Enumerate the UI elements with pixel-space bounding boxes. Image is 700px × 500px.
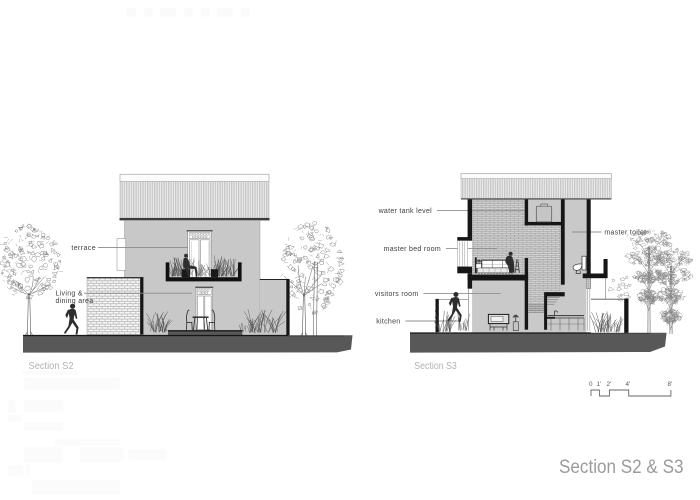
svg-text:Section S3: Section S3 (414, 361, 457, 372)
svg-text:master toilet: master toilet (604, 229, 646, 236)
svg-text:Section S2 & S3: Section S2 & S3 (559, 456, 684, 478)
svg-text:kitchen: kitchen (376, 319, 400, 326)
svg-text:Living &: Living & (56, 290, 83, 297)
svg-text:terrace: terrace (71, 245, 96, 252)
svg-text:1': 1' (597, 381, 602, 388)
svg-text:dining area: dining area (56, 298, 94, 305)
svg-text:8': 8' (668, 381, 673, 388)
svg-text:0: 0 (589, 381, 593, 388)
svg-text:visitors room: visitors room (375, 291, 419, 298)
svg-text:2': 2' (607, 381, 612, 388)
svg-text:water tank level: water tank level (378, 208, 433, 215)
svg-text:master bed room: master bed room (384, 246, 441, 253)
svg-text:Section S2: Section S2 (29, 361, 74, 372)
svg-text:4': 4' (626, 381, 631, 388)
